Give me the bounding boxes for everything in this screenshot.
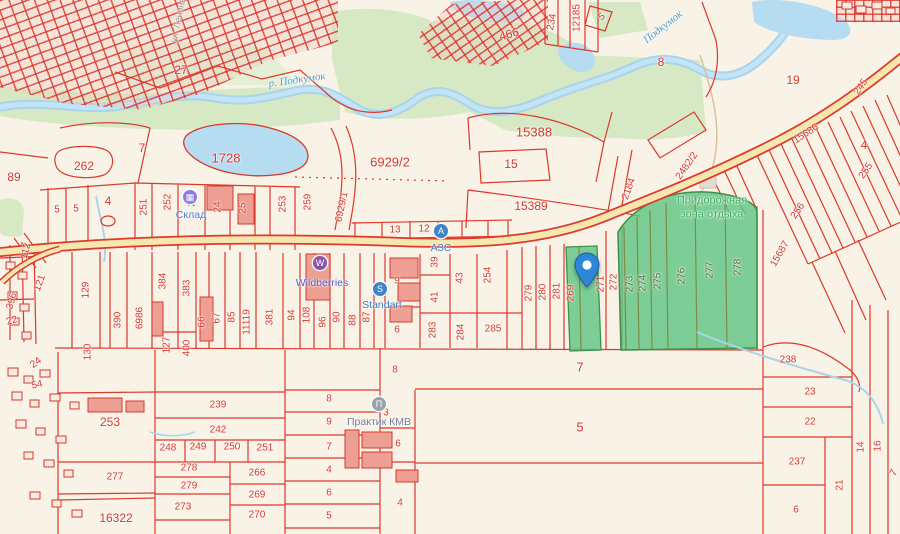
map-canvas[interactable]: 2772628955417286929/21538815153891312819… [0, 0, 900, 534]
map-pin[interactable] [574, 252, 600, 288]
wildberries-label: Wildberries [296, 277, 349, 289]
standart-label: Standart [362, 299, 402, 311]
wildberries-icon[interactable]: W [313, 256, 327, 270]
azs-icon[interactable]: А [434, 224, 448, 238]
praktik-label: Практик КМВ [347, 416, 411, 428]
pin-icon [574, 252, 600, 288]
sklad-label: Склад [176, 209, 206, 221]
standart-icon[interactable]: S [373, 282, 387, 296]
sklad-icon[interactable]: ▦ [183, 190, 197, 204]
azs-label: АЗС [431, 242, 452, 254]
poi-layer: ▦СкладWWildberriesSStandartААЗСППрактик … [0, 0, 900, 534]
praktik-icon[interactable]: П [372, 397, 386, 411]
